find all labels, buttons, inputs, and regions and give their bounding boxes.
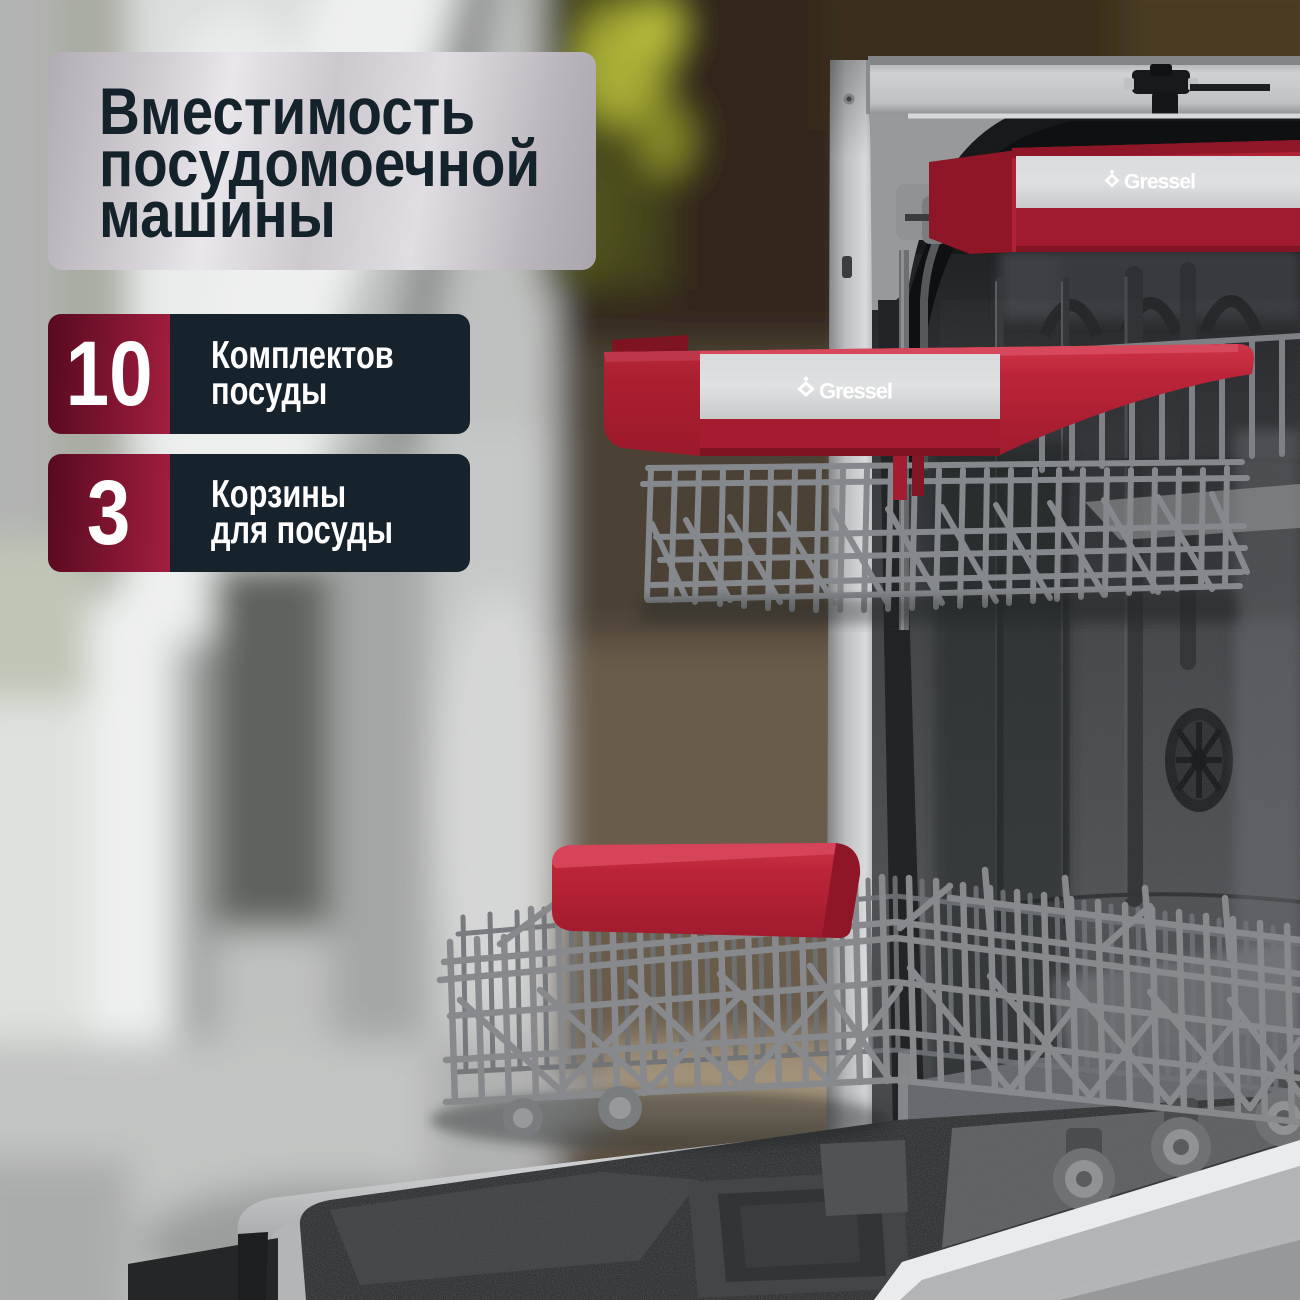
svg-text:Gressel: Gressel [1124,171,1196,194]
svg-text:Gressel: Gressel [819,379,893,404]
